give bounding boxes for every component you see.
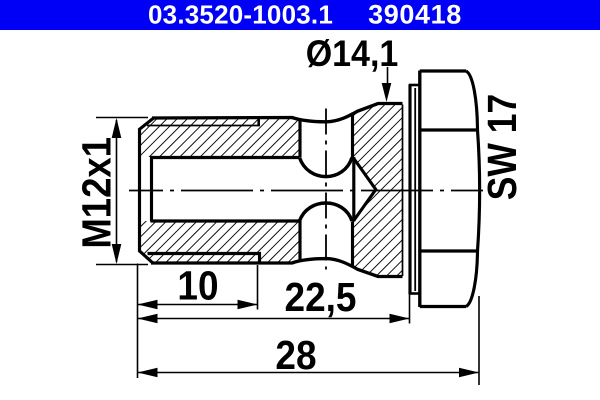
svg-text:03.3520-1003.1: 03.3520-1003.1 (148, 0, 333, 30)
svg-text:390418: 390418 (368, 0, 462, 30)
svg-text:Ø14,1: Ø14,1 (306, 34, 399, 74)
svg-text:10: 10 (177, 264, 218, 309)
svg-text:22,5: 22,5 (285, 275, 357, 320)
svg-text:M12x1: M12x1 (75, 137, 120, 249)
svg-text:SW 17: SW 17 (480, 94, 526, 201)
svg-text:28: 28 (275, 333, 316, 378)
